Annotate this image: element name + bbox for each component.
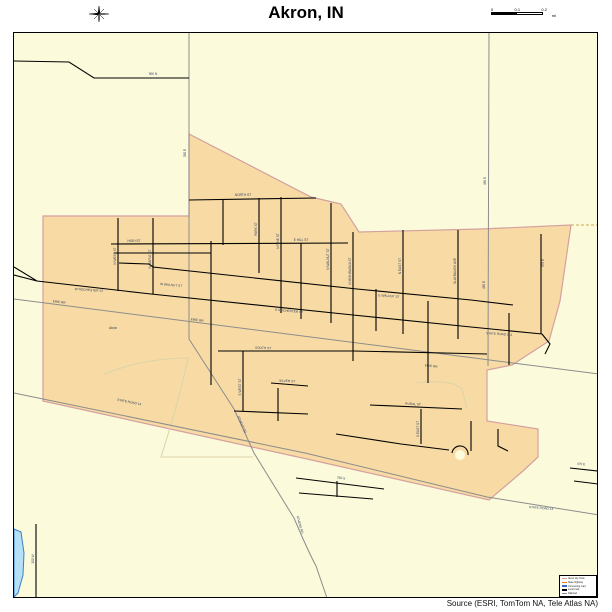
scale-bar-fill	[492, 13, 517, 14]
street-label: N WEST ST	[113, 247, 117, 264]
legend-label: Akron city limits	[568, 577, 585, 580]
culdesac-notch	[455, 450, 465, 460]
scale-unit: mi	[552, 13, 556, 18]
street-label: Akron	[109, 326, 118, 330]
legend-label: Local road	[568, 588, 579, 591]
street-label: 375 E	[541, 259, 545, 267]
legend-swatch	[562, 593, 567, 595]
legend-item: State highway	[562, 581, 594, 584]
street-label: 350 E	[183, 149, 187, 157]
legend-item: Connecting road	[562, 585, 594, 588]
street-label: 450 E	[483, 177, 487, 185]
street-label: N EAST ST	[398, 258, 402, 274]
street-label: SOUTH ST	[255, 346, 271, 351]
street-label: 250 S	[337, 475, 346, 480]
legend-swatch	[562, 582, 567, 584]
street-label: N WALNUT ST	[326, 248, 330, 269]
street-label: E HILL ST	[294, 238, 309, 242]
street-label: NORTH ST	[235, 193, 251, 197]
street-label: 900 N	[149, 72, 158, 76]
map-canvas: 900 N350 E450 E450 EN WEST STN MAPLE STH…	[14, 33, 597, 597]
street-label: 450 E	[482, 281, 486, 289]
street-label: S WEST ST	[238, 378, 242, 395]
legend-label: Railroad	[568, 592, 577, 595]
street-label: S EAST ST	[416, 421, 420, 437]
legend-label: State highway	[568, 581, 583, 584]
street-label: SLAYBAUGH AVE	[453, 258, 457, 284]
compass-rose-icon	[88, 3, 110, 25]
street-label: 100 W	[31, 554, 35, 563]
street-label: STATE ROAD 14	[529, 505, 554, 511]
street-label: N MISHAWAKA ST	[348, 257, 352, 284]
street-label: HIGH ST	[128, 239, 141, 243]
city-boundary-polygon	[43, 134, 571, 500]
legend-item: Local road	[562, 588, 594, 591]
source-text: Source (ESRI, TomTom NA, Tele Atlas NA)	[447, 599, 598, 608]
street-label: RURAL ST	[405, 402, 421, 407]
map-page: Akron, IN 00.10.2 mi	[0, 0, 612, 612]
street-label: PARK ST	[254, 222, 258, 235]
street-label: SILVER ST	[279, 379, 295, 384]
scale-bar-graphic	[491, 12, 543, 15]
legend-swatch	[562, 589, 567, 591]
legend-box: Akron city limitsState highwayConnecting…	[559, 575, 597, 597]
street-label: N PINE ST	[276, 233, 280, 249]
scale-bar: 00.10.2 mi	[491, 7, 547, 21]
street-label: 475 E	[577, 462, 586, 466]
legend-item: Akron city limits	[562, 577, 594, 580]
legend-label: Connecting road	[568, 585, 586, 588]
legend-swatch	[562, 578, 567, 580]
street-label: N MAPLE ST	[148, 249, 152, 268]
pond	[14, 529, 24, 597]
legend-swatch	[562, 585, 567, 587]
legend-item: Railroad	[562, 592, 594, 595]
map-frame: 900 N350 E450 E450 EN WEST STN MAPLE STH…	[13, 32, 598, 598]
